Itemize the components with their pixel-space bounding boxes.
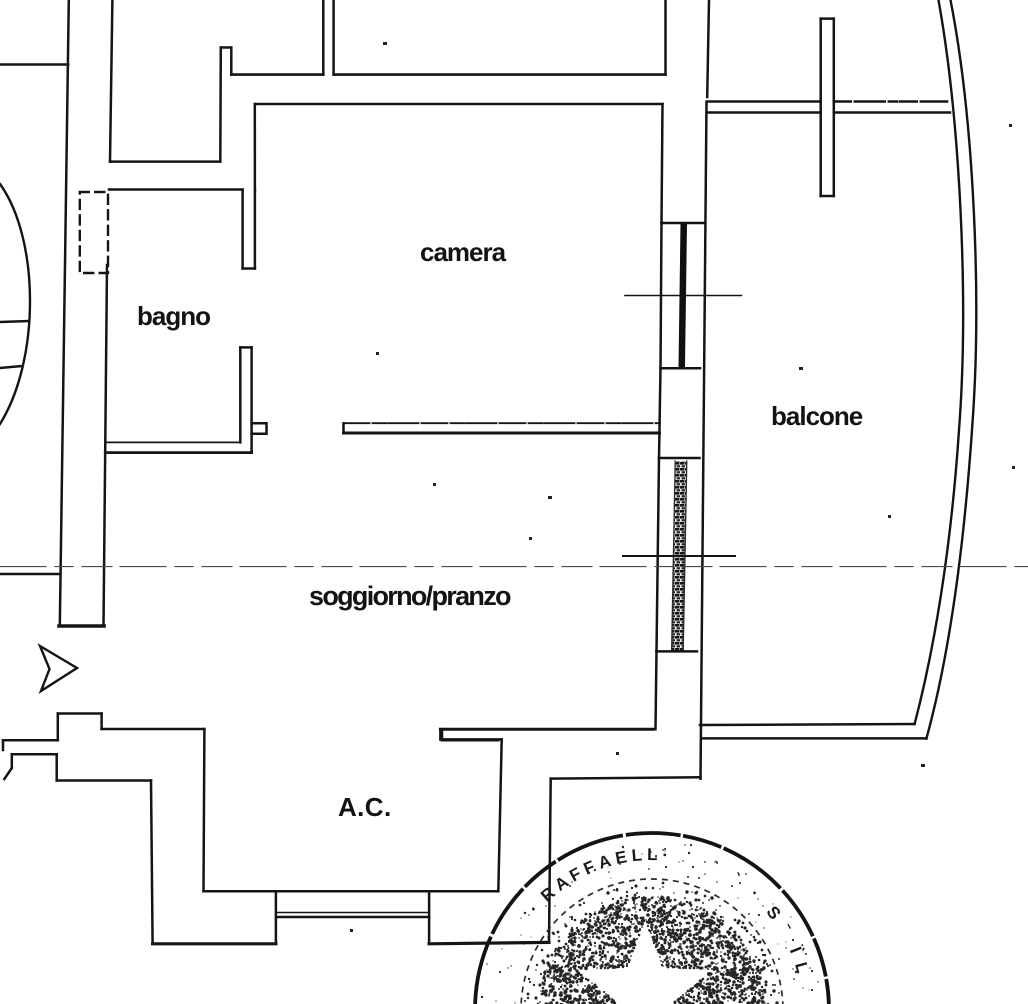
svg-text:A.C.: A.C.: [338, 792, 392, 822]
svg-text:· RАFFАELL· ˋ ` · S ˉ Ї L ˋ: · RАFFАELL· ˋ ` · S ˉ Ї L ˋ ! · ˋ ·: [0, 0, 813, 979]
svg-text:balcone: balcone: [771, 401, 863, 431]
svg-text:soggiorno/pranzo: soggiorno/pranzo: [309, 581, 511, 611]
svg-text:bagno: bagno: [137, 301, 210, 331]
svg-text:camera: camera: [420, 237, 507, 267]
